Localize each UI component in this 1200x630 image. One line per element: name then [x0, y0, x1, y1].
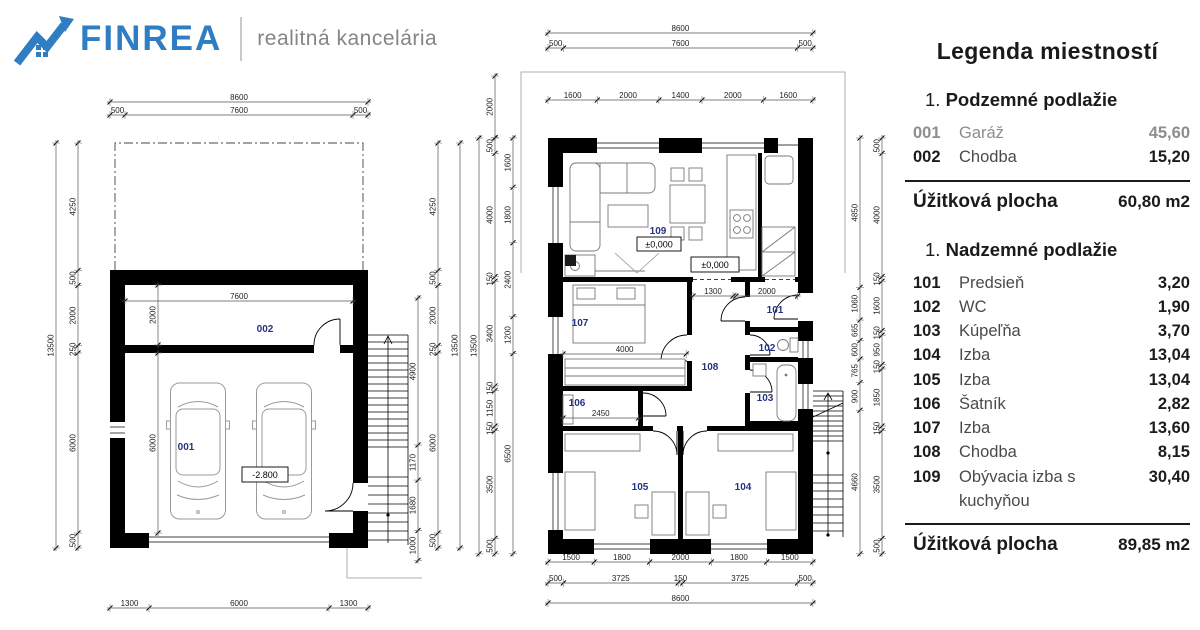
- svg-text:500: 500: [549, 39, 563, 48]
- legend-divider: [905, 523, 1190, 525]
- svg-text:1850: 1850: [873, 388, 882, 406]
- svg-text:900: 900: [851, 389, 860, 403]
- dim-left-chain: 5004000150340015011501503500500: [486, 135, 500, 557]
- svg-text:7600: 7600: [230, 292, 248, 301]
- svg-text:2400: 2400: [504, 270, 513, 288]
- svg-text:1060: 1060: [851, 294, 860, 312]
- svg-text:150: 150: [486, 272, 495, 286]
- dim-bottom-overall: 8600: [545, 594, 816, 607]
- svg-text:150: 150: [873, 326, 882, 340]
- legend-total-row: Úžitková plocha 60,80 m2: [905, 191, 1190, 213]
- room-name: Izba: [959, 343, 1149, 367]
- svg-text:4000: 4000: [486, 206, 495, 224]
- room-code: 105: [913, 368, 959, 392]
- room-label-104: 104: [735, 482, 752, 493]
- svg-text:150: 150: [674, 574, 688, 583]
- svg-text:8600: 8600: [672, 24, 690, 33]
- svg-text:3500: 3500: [873, 475, 882, 493]
- svg-text:6000: 6000: [149, 434, 158, 452]
- house-arrow-icon: [14, 12, 76, 66]
- svg-text:1500: 1500: [562, 553, 580, 562]
- svg-text:3725: 3725: [731, 574, 749, 583]
- svg-text:950: 950: [873, 343, 882, 357]
- room-name: Izba: [959, 368, 1149, 392]
- legend-section-heading: 1. Nadzemné podlažie: [905, 239, 1190, 261]
- svg-text:500: 500: [799, 574, 813, 583]
- dim-right-chain: 5004000150160015095015018501503500500: [873, 135, 887, 557]
- legend-row: 106 Šatník 2,82: [913, 392, 1190, 416]
- room-code: 108: [913, 440, 959, 464]
- svg-text:1680: 1680: [409, 496, 418, 514]
- svg-text:500: 500: [69, 271, 78, 285]
- svg-text:3725: 3725: [612, 574, 630, 583]
- legend-row: 104 Izba 13,04: [913, 343, 1190, 367]
- svg-text:2000: 2000: [149, 306, 158, 324]
- svg-text:3500: 3500: [486, 475, 495, 493]
- svg-text:13500: 13500: [470, 334, 479, 357]
- svg-text:1150: 1150: [486, 399, 495, 417]
- svg-text:2000: 2000: [672, 553, 690, 562]
- room-code: 102: [913, 295, 959, 319]
- svg-text:2000: 2000: [429, 306, 438, 324]
- exterior-stairs: [368, 335, 408, 545]
- svg-text:1200: 1200: [504, 326, 513, 344]
- svg-text:6000: 6000: [429, 434, 438, 452]
- svg-text:500: 500: [486, 138, 495, 152]
- total-label: Úžitková plocha: [913, 534, 1058, 556]
- legend-panel: Legenda miestností 1. Podzemné podlažie …: [905, 38, 1190, 582]
- brand-name: FINREA: [80, 19, 222, 59]
- legend-row: 001 Garáž 45,60: [913, 121, 1190, 145]
- svg-text:1000: 1000: [409, 536, 418, 554]
- section-number: 1.: [925, 239, 940, 260]
- svg-text:2000: 2000: [619, 91, 637, 100]
- dim-left-chain: 425050020002506000500: [69, 140, 83, 551]
- legend-title: Legenda miestností: [905, 38, 1190, 65]
- dim-top-overall: 8600: [545, 24, 816, 37]
- floorplan-sheet: FINREA realitná kancelária: [0, 0, 1200, 630]
- legend-row: 002 Chodba 15,20: [913, 145, 1190, 169]
- room-name: Chodba: [959, 440, 1158, 464]
- room-code: 107: [913, 416, 959, 440]
- legend-rows: 001 Garáž 45,60 002 Chodba 15,20: [905, 121, 1190, 170]
- svg-text:1600: 1600: [779, 91, 797, 100]
- svg-text:150: 150: [486, 421, 495, 435]
- svg-text:250: 250: [69, 342, 78, 356]
- dim-right-overall: 13500: [451, 140, 465, 551]
- svg-text:765: 765: [851, 364, 860, 378]
- room-label-101: 101: [767, 305, 784, 316]
- legend-sections: 1. Podzemné podlažie 001 Garáž 45,60 002…: [905, 89, 1190, 556]
- svg-text:1600: 1600: [873, 296, 882, 314]
- room-label-105: 105: [632, 482, 649, 493]
- dim-left-top: 2000: [486, 73, 500, 141]
- total-value: 89,85 m2: [1118, 535, 1190, 555]
- svg-text:2000: 2000: [758, 287, 776, 296]
- elevation-value-1: ±0,000: [645, 240, 672, 250]
- room-name: Šatník: [959, 392, 1158, 416]
- ground-floor-plan: 8600 5007600500 16002000140020001600 135…: [465, 5, 910, 630]
- legend-section: 1. Nadzemné podlažie 101 Predsieň 3,20 1…: [905, 239, 1190, 557]
- dim-right-chain: 425050020002506000500: [429, 140, 443, 551]
- svg-text:6000: 6000: [69, 434, 78, 452]
- room-label-109: 109: [650, 226, 667, 237]
- svg-text:500: 500: [873, 138, 882, 152]
- svg-text:1500: 1500: [781, 553, 799, 562]
- room-area: 1,90: [1158, 295, 1190, 319]
- room-area: 13,60: [1149, 416, 1190, 440]
- svg-text:1400: 1400: [672, 91, 690, 100]
- room-name: Izba: [959, 416, 1149, 440]
- svg-text:1800: 1800: [730, 553, 748, 562]
- room-area: 13,04: [1149, 368, 1190, 392]
- room-code: 103: [913, 319, 959, 343]
- room-label-001: 001: [178, 442, 195, 453]
- logo: FINREA realitná kancelária: [14, 12, 437, 66]
- svg-text:4660: 4660: [851, 473, 860, 491]
- dim-top-overall: 8600: [107, 93, 371, 106]
- svg-text:500: 500: [429, 533, 438, 547]
- svg-text:250: 250: [429, 342, 438, 356]
- legend-row: 105 Izba 13,04: [913, 368, 1190, 392]
- svg-text:1800: 1800: [504, 206, 513, 224]
- svg-text:500: 500: [429, 271, 438, 285]
- dim-stairs-chain: 4900117016801000: [409, 295, 423, 564]
- dim-left-overall: 13500: [470, 135, 484, 557]
- room-label-107: 107: [572, 318, 589, 329]
- svg-text:1800: 1800: [613, 553, 631, 562]
- legend-section-heading: 1. Podzemné podlažie: [905, 89, 1190, 111]
- svg-text:1600: 1600: [564, 91, 582, 100]
- room-area: 13,04: [1149, 343, 1190, 367]
- dim-left-inner: 16001800240012006500: [504, 135, 518, 557]
- dim-right-inner: 485010606656007659004660: [851, 135, 865, 557]
- svg-text:2000: 2000: [724, 91, 742, 100]
- svg-text:4250: 4250: [69, 197, 78, 215]
- svg-text:4900: 4900: [409, 362, 418, 380]
- basement-floor-plan: 8600 5007600500 13500 425050020002506000…: [40, 85, 470, 630]
- room-label-103: 103: [757, 393, 774, 404]
- svg-text:500: 500: [799, 39, 813, 48]
- legend-row: 102 WC 1,90: [913, 295, 1190, 319]
- svg-text:500: 500: [69, 533, 78, 547]
- room-name: Chodba: [959, 145, 1149, 169]
- room-name: Garáž: [959, 121, 1149, 145]
- svg-text:4000: 4000: [873, 206, 882, 224]
- legend-total-row: Úžitková plocha 89,85 m2: [905, 534, 1190, 556]
- svg-text:4000: 4000: [616, 345, 634, 354]
- legend-row: 103 Kúpeľňa 3,70: [913, 319, 1190, 343]
- svg-text:2000: 2000: [69, 306, 78, 324]
- svg-text:13500: 13500: [47, 334, 56, 357]
- room-label-108: 108: [702, 362, 719, 373]
- svg-text:150: 150: [873, 359, 882, 373]
- room-code: 104: [913, 343, 959, 367]
- basement-stair-symbol: [762, 227, 795, 276]
- svg-text:500: 500: [354, 106, 368, 115]
- svg-text:1600: 1600: [504, 153, 513, 171]
- dim-bottom-chain: 130060001300: [107, 599, 371, 612]
- svg-text:6500: 6500: [504, 444, 513, 462]
- svg-text:1300: 1300: [704, 287, 722, 296]
- room-area: 3,70: [1158, 319, 1190, 343]
- svg-text:8600: 8600: [230, 93, 248, 102]
- legend-row: 107 Izba 13,60: [913, 416, 1190, 440]
- svg-text:1170: 1170: [409, 453, 418, 471]
- brand-tagline: realitná kancelária: [257, 27, 437, 51]
- svg-text:500: 500: [486, 539, 495, 553]
- svg-text:2450: 2450: [592, 409, 610, 418]
- room-name: Kúpeľňa: [959, 319, 1158, 343]
- logo-divider: [240, 17, 242, 61]
- legend-rows: 101 Predsieň 3,20 102 WC 1,90 103 Kúpeľň…: [905, 271, 1190, 514]
- room-area: 15,20: [1149, 145, 1190, 169]
- svg-text:2000: 2000: [486, 97, 495, 115]
- svg-text:500: 500: [111, 106, 125, 115]
- room-label-002: 002: [257, 324, 274, 335]
- svg-text:150: 150: [486, 381, 495, 395]
- svg-text:150: 150: [873, 421, 882, 435]
- dim-top-chain5: 16002000140020001600: [545, 91, 816, 104]
- section-title: Podzemné podlažie: [940, 89, 1117, 110]
- total-label: Úžitková plocha: [913, 191, 1058, 213]
- elevation-value-2: ±0,000: [701, 260, 728, 270]
- svg-text:500: 500: [549, 574, 563, 583]
- room-area: 30,40: [1149, 465, 1190, 489]
- room-code: 101: [913, 271, 959, 295]
- elevation-marker-basement: -2.800: [242, 467, 288, 482]
- room-area: 45,60: [1149, 121, 1190, 145]
- legend-section: 1. Podzemné podlažie 001 Garáž 45,60 002…: [905, 89, 1190, 213]
- dim-bottom-chain3: 50037251503725500: [545, 574, 816, 587]
- room-code: 109: [913, 465, 959, 489]
- svg-text:7600: 7600: [230, 106, 248, 115]
- dim-top-chain: 5007600500: [107, 106, 371, 119]
- legend-row: 109 Obývacia izba s kuchyňou 30,40: [913, 465, 1190, 514]
- svg-text:600: 600: [851, 343, 860, 357]
- room-label-106: 106: [569, 398, 586, 409]
- legend-divider: [905, 180, 1190, 182]
- room-name: Predsieň: [959, 271, 1158, 295]
- svg-text:665: 665: [851, 323, 860, 337]
- legend-row: 108 Chodba 8,15: [913, 440, 1190, 464]
- exterior-stairs-floor: [813, 391, 843, 537]
- room-code: 002: [913, 145, 959, 169]
- section-number: 1.: [925, 89, 940, 110]
- basement-overhang-outline: [115, 143, 363, 270]
- elevation-value: -2.800: [252, 470, 278, 480]
- svg-text:7600: 7600: [672, 39, 690, 48]
- dim-left-overall: 13500: [47, 140, 61, 551]
- svg-text:13500: 13500: [451, 334, 460, 357]
- room-area: 3,20: [1158, 271, 1190, 295]
- section-title: Nadzemné podlažie: [940, 239, 1117, 260]
- svg-text:1300: 1300: [340, 599, 358, 608]
- svg-text:8600: 8600: [672, 594, 690, 603]
- car-right: [253, 383, 316, 519]
- svg-text:3400: 3400: [486, 324, 495, 342]
- total-value: 60,80 m2: [1118, 192, 1190, 212]
- svg-text:6000: 6000: [230, 599, 248, 608]
- legend-row: 101 Predsieň 3,20: [913, 271, 1190, 295]
- svg-text:500: 500: [873, 539, 882, 553]
- room-area: 8,15: [1158, 440, 1190, 464]
- dim-bottom-chain5: 15001800200018001500: [545, 553, 816, 566]
- dim-top-chain3: 5007600500: [545, 39, 816, 52]
- room-label-102: 102: [759, 343, 776, 354]
- svg-text:150: 150: [873, 272, 882, 286]
- room-name: WC: [959, 295, 1158, 319]
- room-code: 106: [913, 392, 959, 416]
- svg-text:4850: 4850: [851, 203, 860, 221]
- room-code: 001: [913, 121, 959, 145]
- svg-text:1300: 1300: [121, 599, 139, 608]
- room-name: Obývacia izba s kuchyňou: [959, 465, 1149, 514]
- svg-text:4250: 4250: [429, 197, 438, 215]
- room-area: 2,82: [1158, 392, 1190, 416]
- car-left: [167, 383, 230, 519]
